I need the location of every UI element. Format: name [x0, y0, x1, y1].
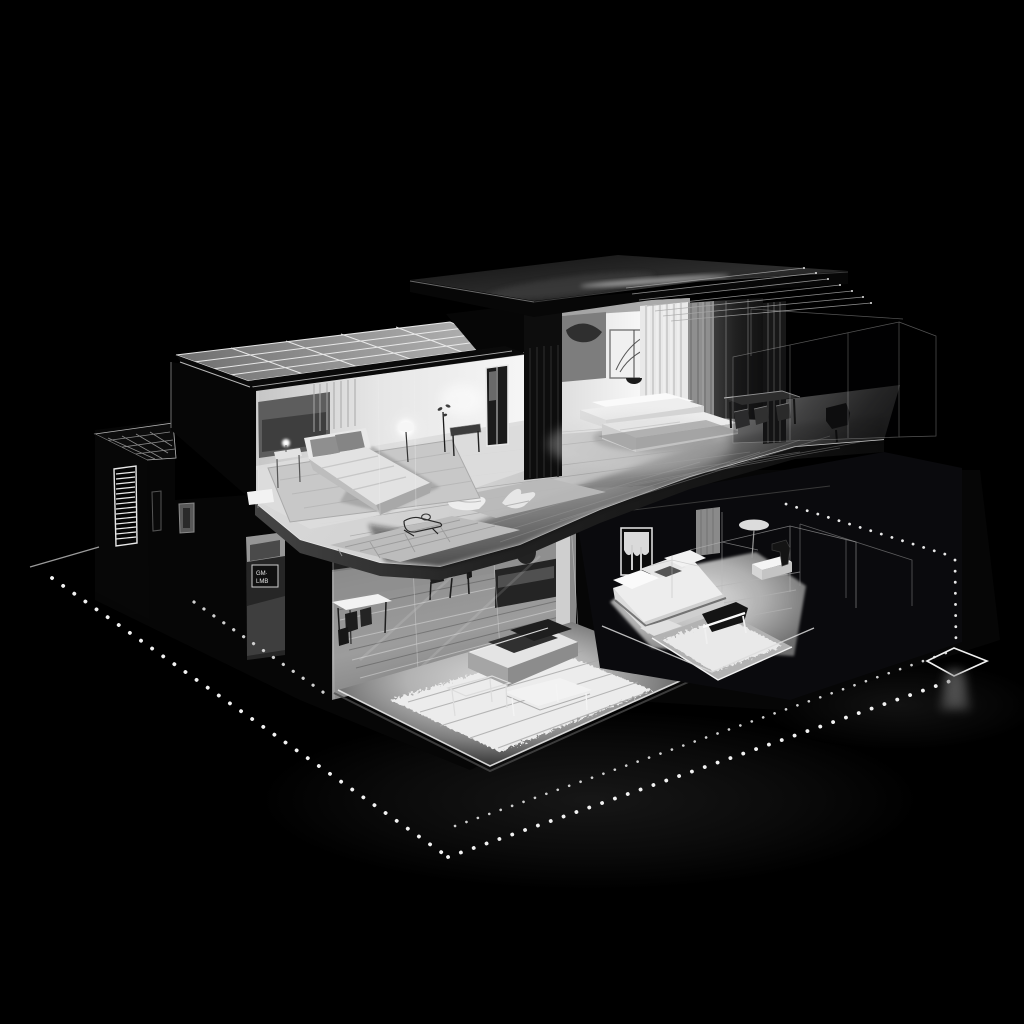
- svg-text:GM·: GM·: [256, 571, 268, 577]
- svg-text:LMB: LMB: [256, 579, 268, 585]
